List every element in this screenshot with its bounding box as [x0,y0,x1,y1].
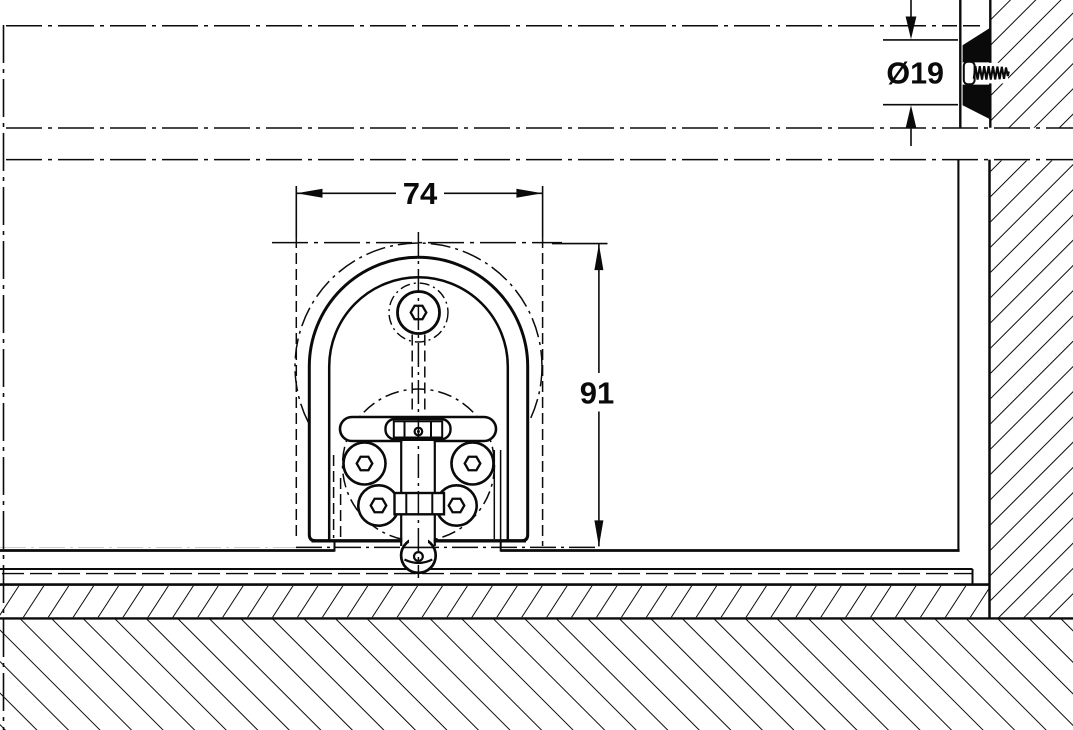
svg-text:Ø19: Ø19 [886,57,944,91]
svg-text:74: 74 [403,176,438,211]
svg-text:91: 91 [580,376,614,411]
